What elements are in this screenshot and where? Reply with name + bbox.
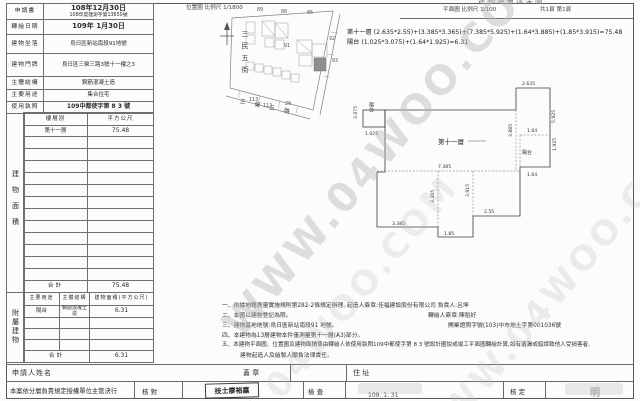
applicant-row-top-line bbox=[6, 364, 633, 365]
note-5: 五、本建物平面圖、位置圖及建物面積係由轉繪人依使用執照109中都使字第 8 3 … bbox=[222, 340, 590, 348]
note-3: 三、建物基地地號:烏日區新站南段91 地號。 bbox=[222, 320, 338, 329]
svg-label: 1.025 bbox=[365, 131, 378, 137]
svg-label: 89 bbox=[257, 7, 263, 13]
address-label: 住 址 bbox=[353, 368, 369, 378]
empty-cell bbox=[24, 329, 60, 340]
room-label: 第十一層 bbox=[438, 137, 464, 146]
license-number-line: 開業證照字號(103)中市地土字第001036號 bbox=[448, 320, 561, 329]
empty-cell bbox=[24, 197, 88, 209]
empty-cell bbox=[60, 318, 90, 329]
empty-cell bbox=[60, 340, 90, 351]
inspect-date: 109. 1. 31 bbox=[368, 392, 399, 399]
note-2: 二、本圖以建物登記為限。 bbox=[222, 310, 292, 319]
floor-area-formula: 第十一層 (2.635*2.55)+(3.385*3.365)+(7.385*5… bbox=[347, 27, 622, 36]
approval-row-top-line bbox=[6, 381, 633, 382]
main-use: 集合住宅 bbox=[44, 90, 154, 102]
empty-cell bbox=[88, 149, 154, 161]
empty-cell bbox=[24, 173, 88, 185]
empty-cell bbox=[24, 233, 88, 245]
dimension-labels: 3.0751.0257.3853.3653.9152.6355.9253.885… bbox=[353, 81, 558, 237]
info-label: 建物門牌 bbox=[7, 54, 44, 77]
annex-col-header: 主體結構 bbox=[60, 293, 90, 306]
empty-cell bbox=[24, 209, 88, 221]
application-doc-number: 108年度建測字第13650號 bbox=[44, 13, 153, 18]
area-empty-rows bbox=[24, 137, 154, 281]
annex-col-header: 建物面積(平方公尺) bbox=[90, 293, 154, 306]
svg-label: 2.635 bbox=[522, 81, 535, 87]
info-label: 轉繪日期 bbox=[7, 20, 44, 35]
svg-label: 2.55 bbox=[484, 209, 494, 215]
annex-total-value: 6.31 bbox=[90, 351, 154, 363]
annex-area-cell: 6.31 bbox=[90, 306, 154, 318]
drafter-signature-line: 轉繪人簽章:陳稻好 bbox=[428, 310, 476, 319]
balcony-right-label: 陽台 bbox=[522, 149, 532, 156]
annex-empty-rows bbox=[24, 318, 154, 351]
empty-cell bbox=[88, 173, 154, 185]
svg-label: 3.365 bbox=[430, 190, 436, 203]
empty-cell bbox=[24, 149, 88, 161]
empty-cell bbox=[88, 257, 154, 269]
approval-row-divider bbox=[134, 381, 135, 398]
note-5-continued: 建物起造人及繪製人願負法律責任。 bbox=[240, 350, 333, 359]
svg-label: 85 bbox=[307, 10, 313, 16]
empty-cell bbox=[88, 221, 154, 233]
empty-cell bbox=[88, 209, 154, 221]
svg-label: 1.85 bbox=[444, 231, 454, 237]
applicant-name-label: 申請人姓名 bbox=[12, 368, 52, 378]
area-col-header: 樓層別 bbox=[24, 113, 88, 126]
note-4: 四、本建物為13層建物本件僅測量第十一層(A3)部分。 bbox=[222, 330, 363, 339]
empty-cell bbox=[24, 245, 88, 257]
svg-label: 3.885 bbox=[508, 124, 514, 137]
info-label: 主體結構 bbox=[7, 77, 44, 90]
balcony-top-label: 陽台 bbox=[368, 101, 374, 113]
empty-cell bbox=[88, 185, 154, 197]
area-col-header: 平方公尺 bbox=[88, 113, 154, 126]
delegation-text: 本案依分層負責規定授權單位主管決行 bbox=[10, 386, 117, 395]
street-name-left: 三民五街 bbox=[240, 30, 250, 78]
approval-row-divider bbox=[503, 381, 504, 398]
empty-cell bbox=[24, 161, 88, 173]
approver-stamp: 明 bbox=[590, 384, 602, 399]
approval-row-divider bbox=[345, 381, 346, 398]
page-count-label: 共1頁 第1頁 bbox=[540, 5, 571, 13]
note-1: 一、依據地籍測量實施規則第282-2條規定辦理。 bbox=[222, 300, 349, 309]
info-label: 申請書 bbox=[7, 4, 44, 20]
floor-plan-outline bbox=[363, 88, 550, 237]
empty-cell bbox=[88, 197, 154, 209]
building-outlines bbox=[246, 21, 327, 82]
svg-label: 5.925 bbox=[551, 110, 557, 123]
info-label: 建物坐落 bbox=[7, 35, 44, 54]
site-plan-map: 89888591929311311229 bbox=[180, 2, 370, 120]
svg-label: 3.385 bbox=[392, 221, 405, 227]
building-doorplate: 烏日區三榮三路3號十一樓之3 bbox=[44, 54, 154, 77]
main-structure: 鋼筋混凝土造 bbox=[44, 77, 154, 90]
area-total-label: 合計 bbox=[24, 281, 88, 293]
floor-name-cell: 第十一層 bbox=[24, 126, 88, 137]
transcription-date: 109年 1月30日 bbox=[44, 20, 154, 35]
approval-row-divider bbox=[182, 381, 183, 398]
seal-label: 蓋 章 bbox=[243, 368, 259, 378]
approve-label: 核 定 bbox=[510, 386, 525, 396]
inspect-label: 檢 查 bbox=[308, 386, 323, 396]
header-divider-line bbox=[400, 18, 633, 19]
annex-col-header: 主要用途 bbox=[24, 293, 60, 306]
empty-cell bbox=[88, 245, 154, 257]
svg-label: 93 bbox=[332, 58, 338, 64]
empty-cell bbox=[24, 340, 60, 351]
annex-building-table: 主要用途 主體結構 建物面積(平方公尺) 陽台 鋼筋混凝土造 6.31 合計 6… bbox=[23, 292, 154, 363]
empty-cell bbox=[90, 318, 154, 329]
svg-label: 1.64 bbox=[527, 172, 537, 178]
svg-label: 1.925 bbox=[552, 138, 558, 151]
balcony-area-formula: 陽台 (1.025*3.075)+(1.64*1.925)=6.31 bbox=[347, 37, 468, 46]
building-site: 烏日區新站南段91地號 bbox=[44, 35, 154, 54]
annex-structure-cell: 鋼筋混凝土造 bbox=[60, 306, 90, 318]
empty-cell bbox=[90, 329, 154, 340]
approval-row-divider bbox=[545, 381, 546, 398]
empty-cell bbox=[88, 269, 154, 281]
empty-cell bbox=[88, 137, 154, 149]
svg-label: 3.915 bbox=[465, 184, 471, 197]
empty-cell bbox=[88, 233, 154, 245]
empty-cell bbox=[88, 161, 154, 173]
info-value: 108年12月30日 108年度建測字第13650號 bbox=[44, 4, 154, 20]
empty-cell bbox=[24, 318, 60, 329]
annex-use-cell: 陽台 bbox=[24, 306, 60, 318]
builder-signature-line: 起造人簽章:佳福建設股份有限公司 負責人:呂坤 bbox=[347, 300, 469, 309]
svg-label: 88 bbox=[281, 9, 287, 15]
empty-cell bbox=[24, 221, 88, 233]
survey-form-page: 建物測量成果圖 位置圖 比例尺 1/1800 平面圖 比例尺 1/100 共1頁… bbox=[0, 0, 640, 401]
application-date: 108年12月30日 bbox=[44, 5, 153, 13]
empty-cell bbox=[24, 137, 88, 149]
annex-total-label: 合計 bbox=[24, 351, 90, 363]
info-label: 主要用途 bbox=[7, 90, 44, 102]
empty-cell bbox=[90, 340, 154, 351]
empty-cell bbox=[24, 185, 88, 197]
floor-area-table: 樓層別 平方公尺 第十一層 75.48 合計 75.48 bbox=[23, 112, 154, 293]
area-total-value: 75.48 bbox=[88, 281, 154, 293]
approval-row-divider bbox=[303, 381, 304, 398]
applicant-row-divider bbox=[346, 364, 347, 381]
empty-cell bbox=[24, 257, 88, 269]
empty-cell bbox=[24, 269, 88, 281]
building-info-table: 申請書 108年12月30日 108年度建測字第13650號 轉繪日期 109年… bbox=[6, 3, 154, 114]
technician-stamp: 技士廖裕嘉 bbox=[205, 382, 259, 398]
empty-cell bbox=[60, 329, 90, 340]
floor-plan-drawing: 第十一層 陽台 陽台 3.0751.0257.3853.3653.9152.63… bbox=[352, 78, 592, 273]
svg-label: 91 bbox=[284, 43, 290, 49]
check-label: 核 對 bbox=[142, 386, 157, 396]
svg-label: 3.075 bbox=[353, 106, 359, 119]
svg-label: 7.385 bbox=[438, 164, 451, 170]
applicant-row-divider bbox=[290, 364, 291, 381]
floor-plan-scale-label: 平面圖 比例尺 1/100 bbox=[443, 5, 496, 13]
svg-label: 92 bbox=[329, 36, 335, 42]
svg-label: 1.64 bbox=[527, 128, 537, 134]
floor-area-cell: 75.48 bbox=[88, 126, 154, 137]
